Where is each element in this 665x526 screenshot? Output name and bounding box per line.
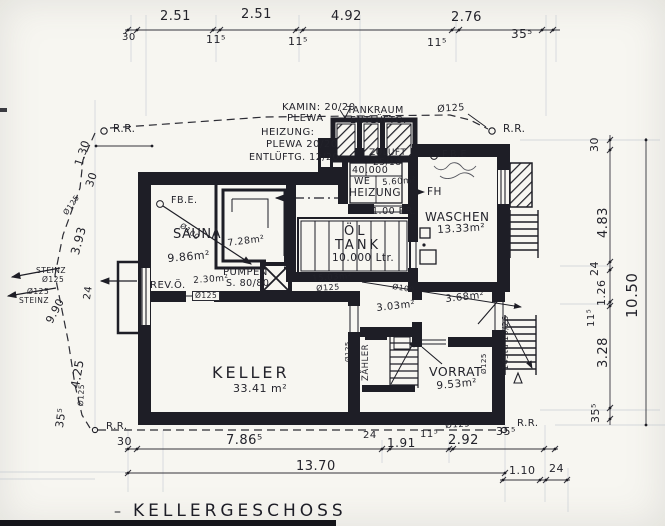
dim-top-30: 30 (122, 33, 136, 43)
dim-right-355: 35⁵ (590, 403, 601, 423)
dim-bot-115: 11⁵ (420, 430, 438, 440)
area-heizung: 5.60m² (382, 177, 416, 188)
area-sauna: 9.86m² (167, 249, 210, 264)
dim-top-115-b: 11⁵ (288, 36, 308, 47)
label-zuluft: ZULUFT (369, 149, 406, 158)
rr-bottom-left: R.R. (106, 422, 128, 432)
label-kamin: KAMIN: 20/20 (282, 103, 356, 113)
label-o125-v1: Ø125 (345, 341, 352, 362)
dim-top-276: 2.76 (451, 11, 482, 24)
dim-bot-355: 35⁵ (496, 426, 516, 437)
dim-right-115: 11⁵ (587, 309, 597, 327)
label-schacht: S. 80/80 (226, 279, 269, 289)
dim-top-251-b: 2.51 (241, 8, 272, 21)
title-dash: – (114, 505, 122, 519)
label-boiler-40000: 40.000 (352, 166, 388, 176)
label-steinz-1: STEINZ (36, 267, 66, 275)
label-o125-corridor: Ø125 (192, 291, 220, 301)
dim-bot-110: 1.10 (509, 465, 536, 476)
area-keller: 33.41 m² (233, 383, 287, 394)
exterior-lightwell-upper (510, 163, 538, 258)
rr-bottom-right: R.R. (517, 419, 539, 429)
label-o125-v2: Ø125 (481, 353, 488, 374)
rr-top-left: R.R. (113, 124, 136, 135)
dim-right-328: 3.28 (597, 337, 610, 368)
label-fbe-waschen: F.B.E (442, 150, 467, 160)
dim-right-30: 30 (589, 137, 600, 152)
interior-stair (390, 333, 418, 388)
label-fh: FH (427, 187, 442, 198)
label-zaehler: ZÄHLER (362, 344, 371, 381)
room-pumpen: PUMPEN (223, 268, 268, 278)
label-stair-ext: 14Std 19/26 (502, 315, 510, 370)
label-entlueftg: ENTLÜFTG. 12/20 (249, 153, 339, 163)
room-heizung: HEIZUNG (349, 188, 401, 199)
room-tank: TANK (335, 239, 381, 252)
dim-top-115-c: 11⁵ (427, 37, 447, 48)
dim-left-355: 35⁵ (54, 407, 68, 428)
area-waschen: 13.33m² (437, 222, 485, 235)
laundry-symbols (420, 228, 436, 264)
dim-bot-24: 24 (363, 431, 377, 441)
dim-bot-1370: 13.70 (296, 460, 336, 473)
drawing-title: KELLERGESCHOSS (133, 501, 347, 521)
label-heizung-plewa: PLEWA 20/20 (266, 140, 338, 150)
dim-top-251-a: 2.51 (160, 10, 191, 23)
dim-top-492: 4.92 (331, 10, 362, 23)
dim-right-483: 4.83 (597, 207, 610, 238)
dim-bot-24b: 24 (549, 463, 564, 474)
label-kamin-plewa: PLEWA (287, 114, 324, 124)
sauna-cabin (216, 183, 292, 270)
dim-right-24: 24 (589, 261, 600, 276)
dim-bot-191: 1.91 (387, 437, 416, 449)
label-fbe-sauna: FB.E. (171, 196, 198, 206)
rr-top-right: R.R. (503, 124, 526, 135)
label-door-100: 1.00 BR. (372, 207, 416, 217)
dim-right-1050: 10.50 (625, 273, 640, 318)
room-sauna: SAUNA (173, 228, 221, 241)
left-light-well (118, 262, 140, 333)
label-revoe: REV.Ö. (150, 281, 186, 291)
room-oel: ÖL (344, 225, 367, 238)
dim-bot-7865: 7.86⁵ (226, 434, 263, 447)
label-o125-top: Ø125 (437, 103, 465, 114)
label-steinz-2d: Ø125 (27, 288, 49, 296)
dim-top-115-a: 11⁵ (206, 34, 226, 45)
scan-artifact-strip (0, 520, 336, 526)
dim-left-24: 24 (83, 285, 95, 300)
label-boiler-we: WE (354, 177, 370, 187)
dim-bot-o125: Ø125 (445, 420, 470, 430)
label-tank-litres: 10.000 Ltr. (332, 253, 394, 264)
room-keller: KELLER (212, 365, 290, 381)
label-o125-tank: Ø125 (316, 283, 340, 293)
label-tankraum-entlueftg: ENTLÜFTG. (350, 116, 407, 126)
dim-bot-292: 2.92 (448, 434, 479, 447)
dim-top-355: 35⁵ (511, 28, 533, 40)
label-steinz-2: STEINZ (19, 297, 49, 305)
label-steinz-1d: Ø125 (42, 276, 64, 284)
dim-bot-30: 30 (117, 436, 132, 447)
scan-artifact-dash (0, 108, 7, 112)
dim-right-126: 1.26 (596, 280, 607, 307)
label-heizung-schacht: HEIZUNG: (261, 128, 315, 138)
floor-plan-page: 302.5111⁵2.5111⁵4.9211⁵2.7635⁵R.R.KAMIN:… (0, 0, 665, 526)
dim-left-o126: Ø125 (77, 384, 86, 407)
